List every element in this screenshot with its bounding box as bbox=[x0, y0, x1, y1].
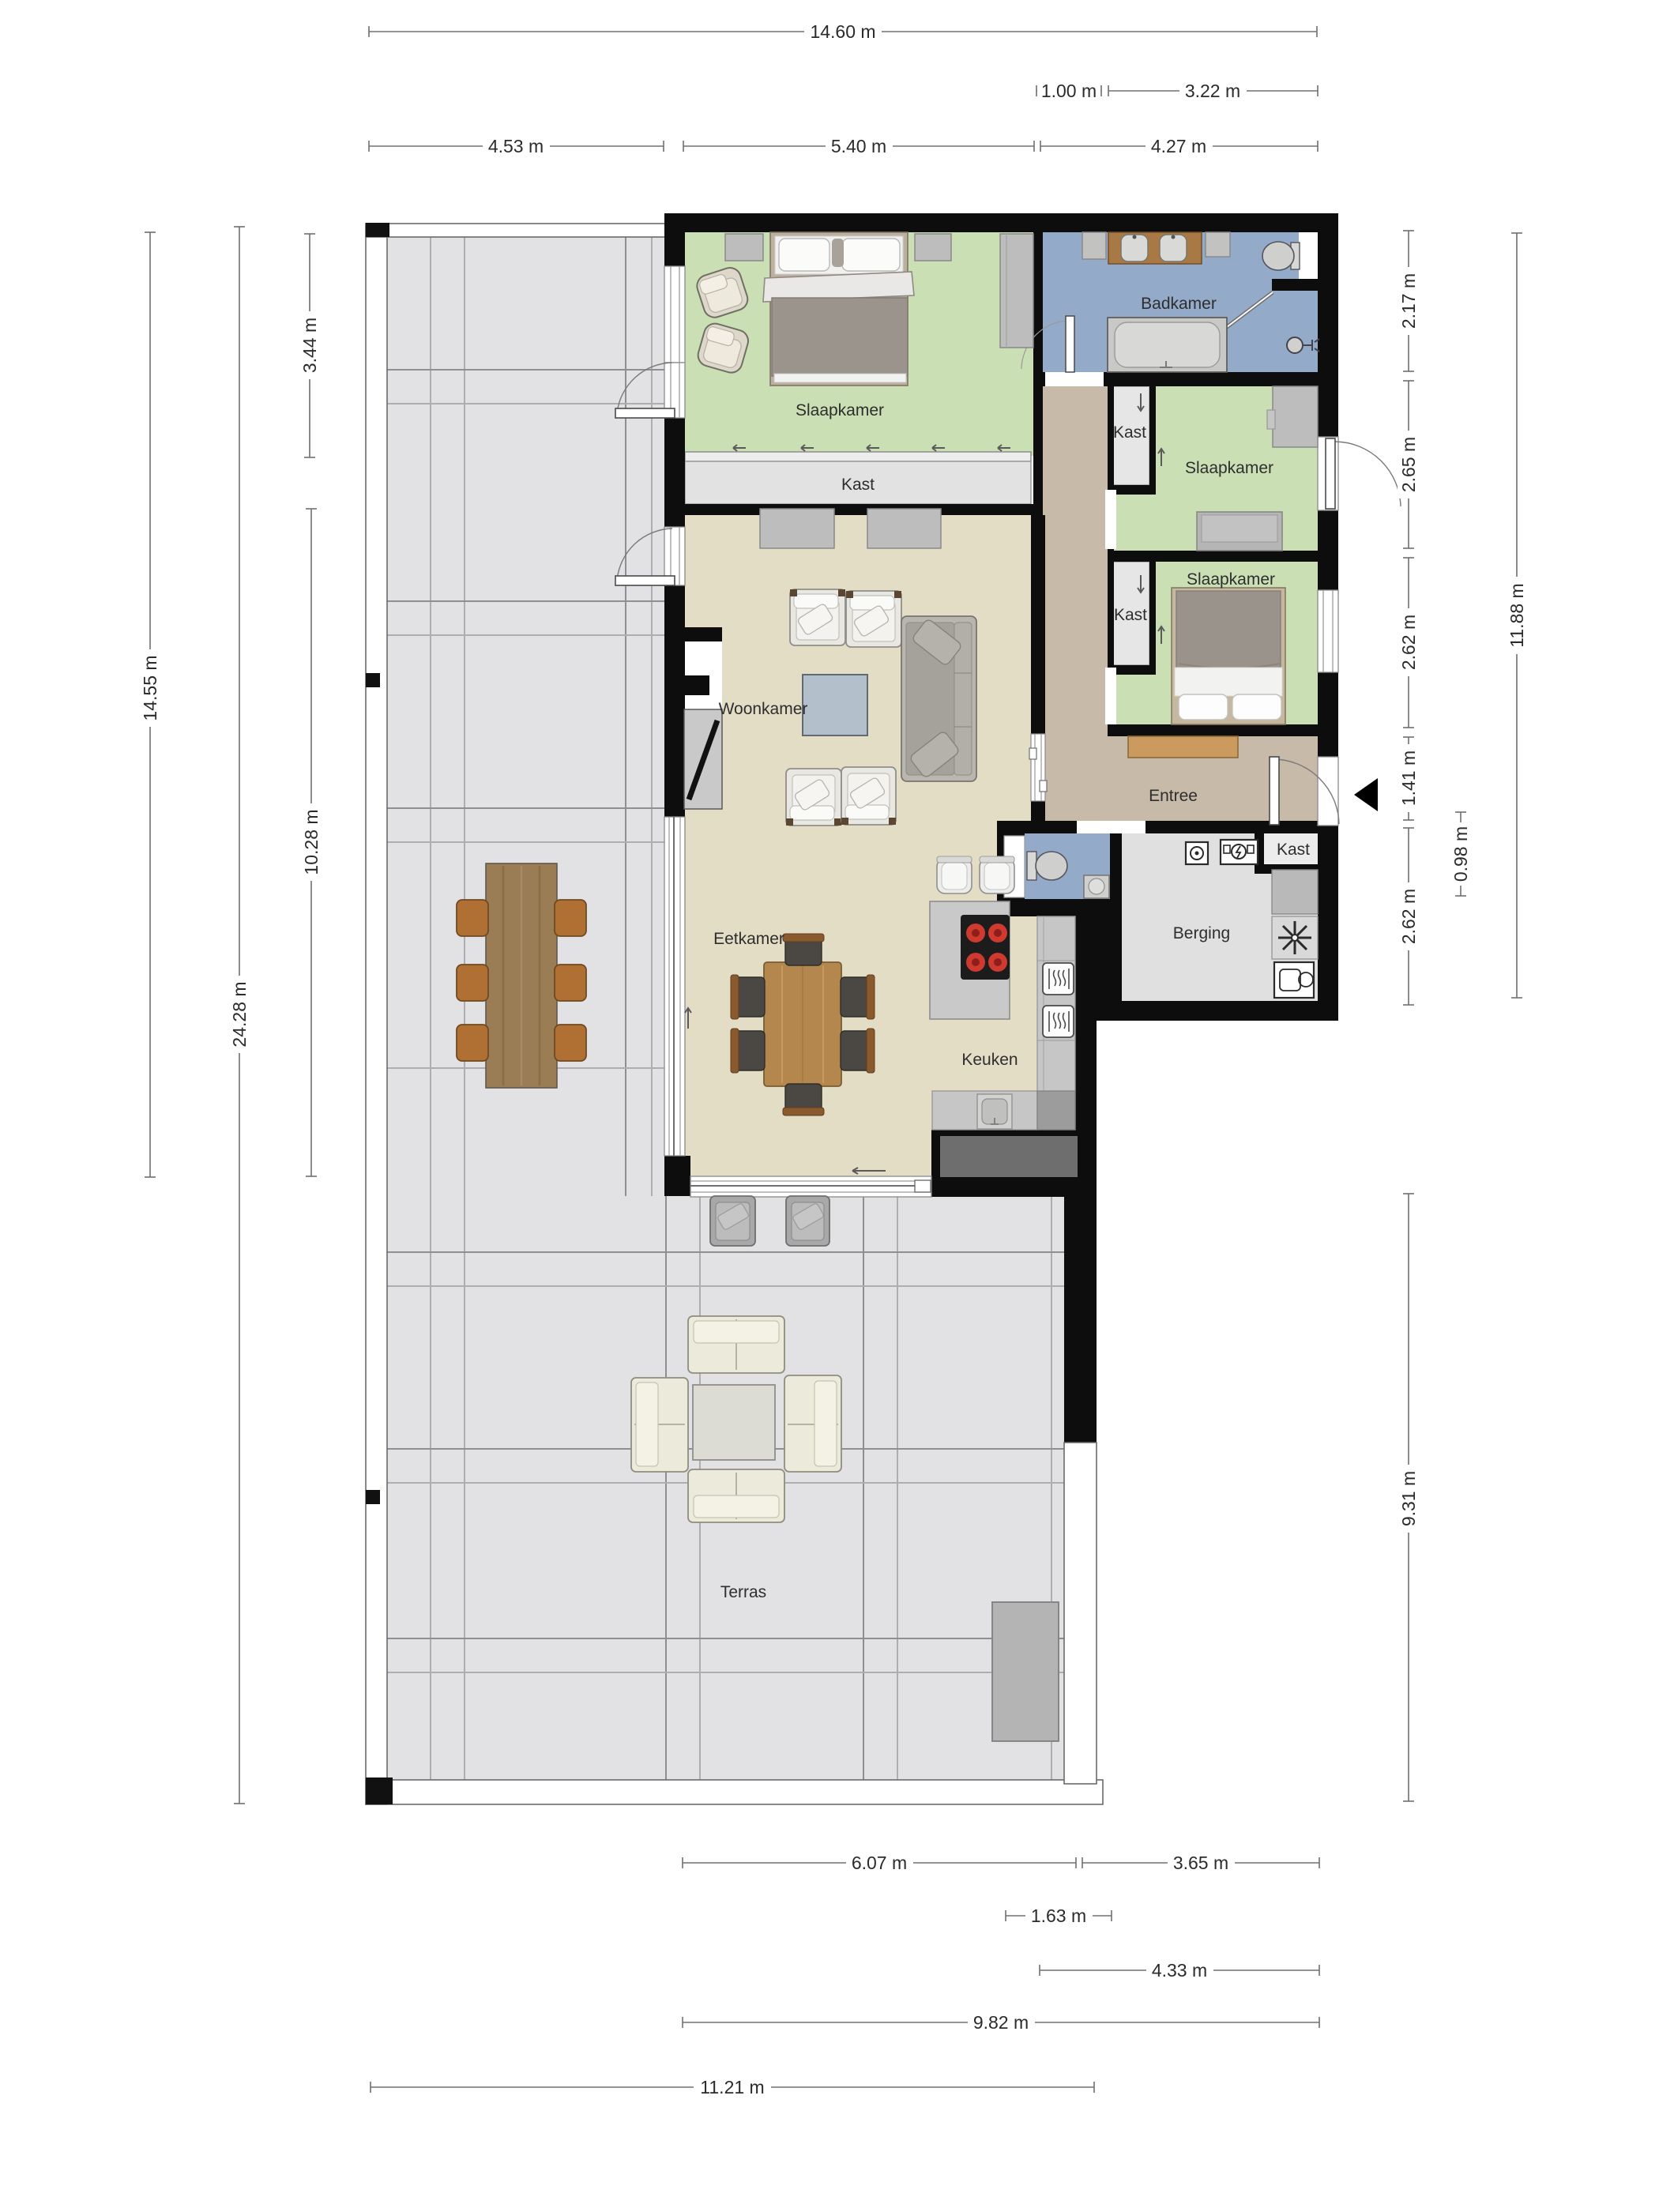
svg-text:3.44 m: 3.44 m bbox=[299, 318, 320, 373]
svg-text:4.53 m: 4.53 m bbox=[488, 136, 544, 156]
svg-text:Berging: Berging bbox=[1173, 924, 1230, 942]
svg-text:4.33 m: 4.33 m bbox=[1152, 1960, 1207, 1981]
svg-text:0.98 m: 0.98 m bbox=[1450, 826, 1471, 882]
svg-text:10.28 m: 10.28 m bbox=[301, 809, 322, 875]
svg-text:Kast: Kast bbox=[1277, 841, 1310, 859]
svg-text:Kast: Kast bbox=[1113, 423, 1146, 442]
svg-text:2.17 m: 2.17 m bbox=[1398, 273, 1419, 329]
svg-text:2.62 m: 2.62 m bbox=[1398, 889, 1419, 944]
svg-text:1.63 m: 1.63 m bbox=[1031, 1905, 1086, 1926]
svg-text:24.28 m: 24.28 m bbox=[229, 981, 250, 1047]
svg-text:9.31 m: 9.31 m bbox=[1398, 1471, 1419, 1526]
svg-text:2.65 m: 2.65 m bbox=[1398, 437, 1419, 492]
svg-text:Slaapkamer: Slaapkamer bbox=[1187, 570, 1275, 589]
svg-text:Slaapkamer: Slaapkamer bbox=[1185, 459, 1273, 477]
svg-text:2.62 m: 2.62 m bbox=[1398, 615, 1419, 670]
svg-text:Badkamer: Badkamer bbox=[1141, 295, 1217, 313]
svg-text:6.07 m: 6.07 m bbox=[852, 1853, 907, 1873]
svg-text:Eetkamer: Eetkamer bbox=[713, 930, 784, 948]
svg-text:11.21 m: 11.21 m bbox=[700, 2077, 764, 2097]
svg-text:5.40 m: 5.40 m bbox=[831, 136, 886, 156]
svg-text:Kast: Kast bbox=[1114, 606, 1147, 624]
svg-text:Kast: Kast bbox=[841, 476, 875, 494]
svg-text:11.88 m: 11.88 m bbox=[1507, 583, 1527, 647]
svg-text:1.41 m: 1.41 m bbox=[1398, 750, 1419, 806]
svg-text:Woonkamer: Woonkamer bbox=[719, 700, 808, 718]
svg-text:Keuken: Keuken bbox=[961, 1051, 1018, 1069]
svg-text:14.55 m: 14.55 m bbox=[140, 655, 160, 720]
svg-text:4.27 m: 4.27 m bbox=[1151, 136, 1206, 156]
svg-text:Terras: Terras bbox=[720, 1583, 766, 1601]
svg-text:14.60 m: 14.60 m bbox=[810, 21, 875, 42]
svg-text:9.82 m: 9.82 m bbox=[973, 2012, 1029, 2033]
svg-text:Entree: Entree bbox=[1149, 787, 1198, 805]
svg-text:3.65 m: 3.65 m bbox=[1173, 1853, 1228, 1873]
svg-text:3.22 m: 3.22 m bbox=[1185, 81, 1240, 101]
svg-text:Slaapkamer: Slaapkamer bbox=[796, 401, 884, 419]
svg-text:1.00 m: 1.00 m bbox=[1041, 81, 1097, 101]
